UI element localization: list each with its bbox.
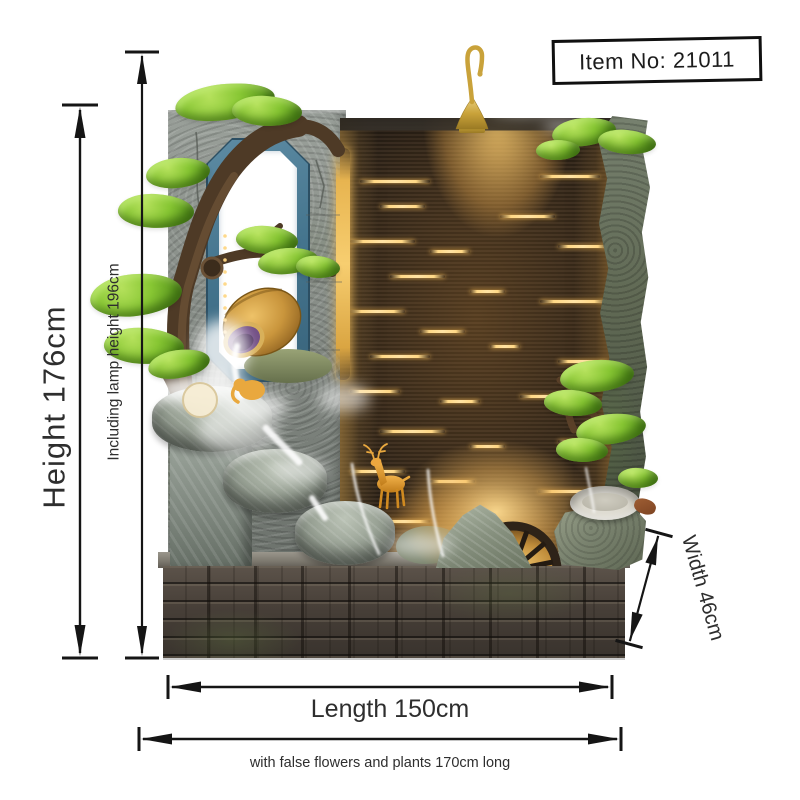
height-label: Height 176cm <box>37 305 72 508</box>
length-label: Length 150cm <box>311 695 469 723</box>
item-number-label: Item No: 21011 <box>579 46 735 75</box>
item-number-box: Item No: 21011 <box>552 36 763 85</box>
overall-length-dimension-arrow <box>139 727 621 751</box>
dimension-annotations: Height 176cm Including lamp height 196cm… <box>0 0 800 800</box>
lamp-height-dimension-arrow <box>125 52 159 658</box>
width-dimension-arrow <box>616 529 673 647</box>
overall-length-note: with false flowers and plants 170cm long <box>249 755 510 771</box>
lamp-height-label: Including lamp height 196cm <box>106 263 123 460</box>
width-label: Width 46cm <box>677 533 729 643</box>
